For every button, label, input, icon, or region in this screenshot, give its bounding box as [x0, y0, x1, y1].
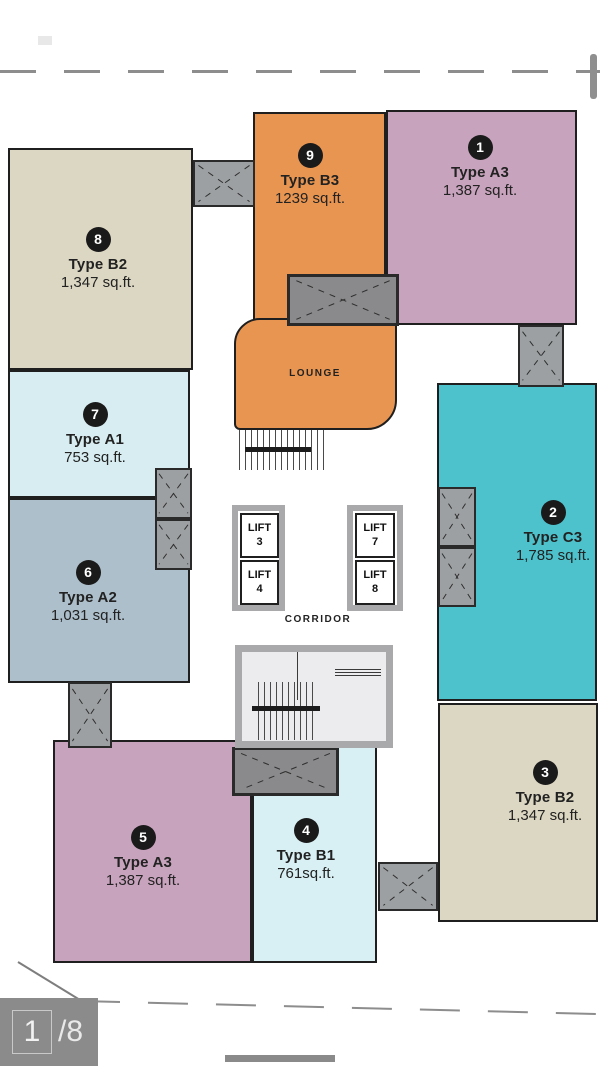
unit-8-label: 8 Type B2 1,347 sq.ft. [36, 227, 160, 291]
scrollbar-thumb[interactable] [590, 54, 597, 99]
lift-7: LIFT7 [355, 513, 395, 558]
unit-number-badge: 7 [83, 402, 108, 427]
stair-landing-band [252, 706, 320, 711]
shaft-icon [68, 682, 112, 748]
shaft-icon [232, 747, 339, 796]
page-number-input[interactable]: 1 [12, 1010, 52, 1054]
page-total-label: /8 [58, 1015, 83, 1049]
unit-type: Type B2 [483, 789, 600, 806]
lift-label: LIFT [363, 522, 386, 536]
unit-number-badge: 6 [76, 560, 101, 585]
lift-number: 3 [256, 536, 262, 550]
shaft-icon [438, 547, 476, 607]
lift-label: LIFT [248, 522, 271, 536]
unit-9-label: 9 Type B3 1239 sq.ft. [248, 143, 372, 207]
lounge-label: LOUNGE [255, 368, 375, 379]
unit-type: Type A2 [26, 589, 150, 606]
unit-number-badge: 8 [86, 227, 111, 252]
shaft-icon [193, 160, 255, 207]
stair-landing-band [245, 447, 311, 452]
unit-number-badge: 1 [468, 135, 493, 160]
bottom-scroll-indicator[interactable] [225, 1055, 335, 1062]
unit-sqft: 1,785 sq.ft. [491, 547, 600, 564]
corner-mark [38, 36, 52, 45]
shaft-icon [378, 862, 438, 911]
unit-sqft: 1,347 sq.ft. [483, 807, 600, 824]
stairwell-rail [335, 675, 381, 676]
lift-number: 8 [372, 583, 378, 597]
unit-type: Type A3 [81, 854, 205, 871]
unit-number-badge: 5 [131, 825, 156, 850]
unit-sqft: 1,031 sq.ft. [26, 607, 150, 624]
shaft-icon [518, 325, 564, 387]
unit-number-badge: 9 [298, 143, 323, 168]
lift-4: LIFT4 [240, 560, 279, 605]
unit-sqft: 753 sq.ft. [33, 449, 157, 466]
unit-3-label: 3 Type B2 1,347 sq.ft. [483, 760, 600, 824]
unit-5-label: 5 Type A3 1,387 sq.ft. [81, 825, 205, 889]
lift-label: LIFT [248, 569, 271, 583]
unit-number-badge: 4 [294, 818, 319, 843]
unit-sqft: 1239 sq.ft. [248, 190, 372, 207]
unit-6-label: 6 Type A2 1,031 sq.ft. [26, 560, 150, 624]
page-indicator: 1 /8 [0, 998, 98, 1066]
lift-number: 4 [256, 583, 262, 597]
lift-number: 7 [372, 536, 378, 550]
unit-type: Type A1 [33, 431, 157, 448]
unit-type: Type B1 [244, 847, 368, 864]
boundary-dashed-line-top [0, 70, 600, 73]
lift-3: LIFT3 [240, 513, 279, 558]
unit-number-badge: 3 [533, 760, 558, 785]
stairwell-rail [335, 669, 381, 670]
stairs-lower [258, 682, 314, 740]
shaft-icon [438, 487, 476, 547]
shaft-icon [155, 519, 192, 570]
unit-sqft: 761sq.ft. [244, 865, 368, 882]
lift-label: LIFT [363, 569, 386, 583]
lift-8: LIFT8 [355, 560, 395, 605]
unit-2-label: 2 Type C3 1,785 sq.ft. [491, 500, 600, 564]
unit-sqft: 1,347 sq.ft. [36, 274, 160, 291]
unit-type: Type A3 [418, 164, 542, 181]
floorplan-page: LIFT3 LIFT4 LIFT7 LIFT8 CORRIDOR 1 Type … [0, 0, 600, 1066]
stairwell-rail [335, 672, 381, 673]
corridor-label: CORRIDOR [258, 614, 378, 625]
shaft-icon [287, 274, 399, 326]
unit-number-badge: 2 [541, 500, 566, 525]
unit-4-label: 4 Type B1 761sq.ft. [244, 818, 368, 882]
unit-sqft: 1,387 sq.ft. [418, 182, 542, 199]
unit-type: Type C3 [491, 529, 600, 546]
unit-type: Type B3 [248, 172, 372, 189]
unit-sqft: 1,387 sq.ft. [81, 872, 205, 889]
unit-7-label: 7 Type A1 753 sq.ft. [33, 402, 157, 466]
unit-1-label: 1 Type A3 1,387 sq.ft. [418, 135, 542, 199]
shaft-icon [155, 468, 192, 519]
unit-type: Type B2 [36, 256, 160, 273]
